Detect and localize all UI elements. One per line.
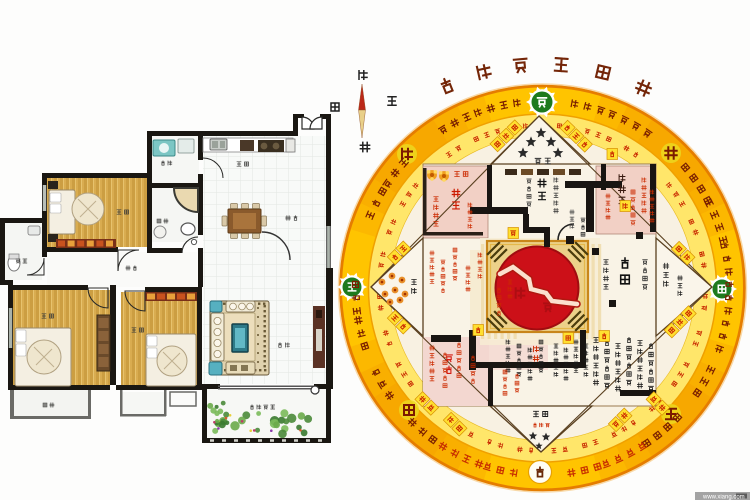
- svg-text:www.xiang.com: www.xiang.com: [702, 495, 745, 500]
